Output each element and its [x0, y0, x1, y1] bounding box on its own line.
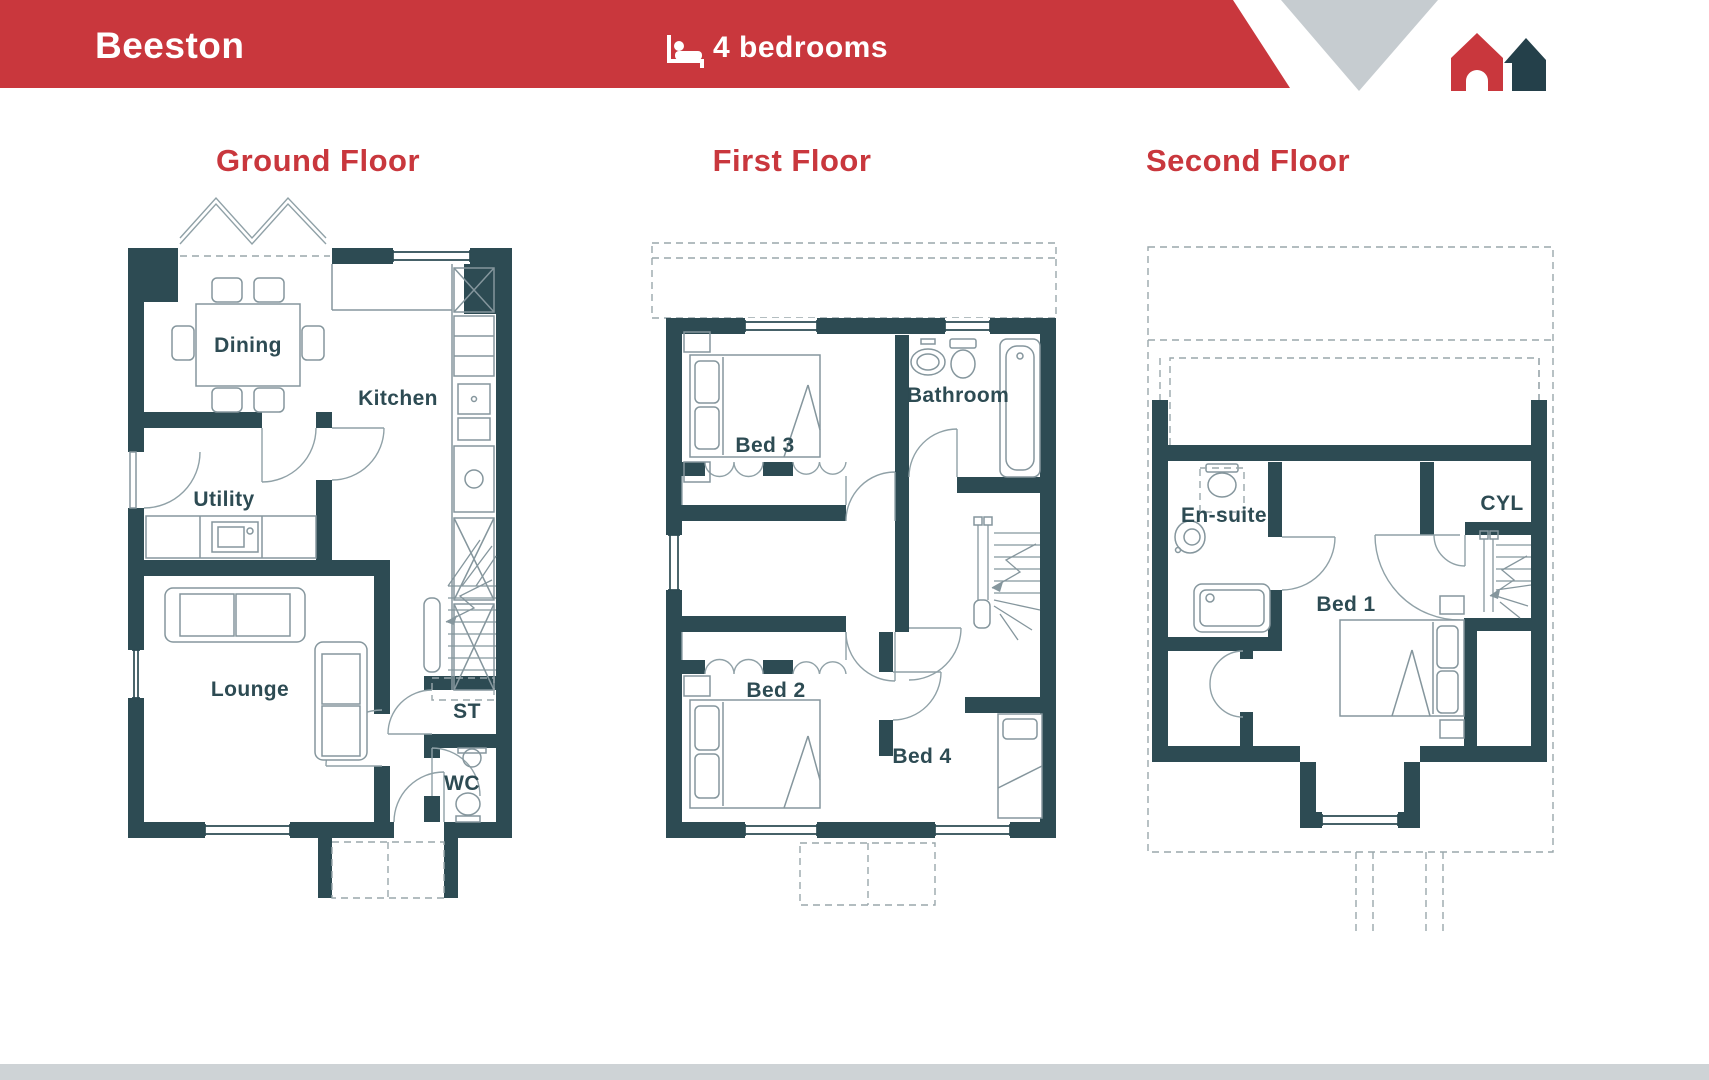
- room-label-dining: Dining: [214, 334, 282, 357]
- room-label-ensuite: En-suite: [1181, 504, 1267, 527]
- bathroom-sink: [911, 349, 945, 375]
- wc-toilet: [456, 793, 480, 815]
- room-label-cyl: CYL: [1480, 492, 1523, 515]
- room-label-bed3: Bed 3: [735, 434, 794, 457]
- bathroom-fixtures: [911, 339, 1040, 477]
- lounge-furniture: [165, 588, 367, 760]
- builder-logo-icon: [1451, 33, 1546, 91]
- wardrobe-bifold-icon: [682, 462, 846, 674]
- plan-ground-floor: Dining Kitchen Utility Lounge ST WC: [128, 198, 512, 898]
- room-label-kitchen: Kitchen: [358, 387, 438, 410]
- room-label-wc: WC: [444, 772, 480, 795]
- porch-outline: [332, 842, 444, 898]
- stairs-second: [1480, 531, 1531, 618]
- shower-tray: [1194, 584, 1270, 632]
- bifold-door-icon: [180, 198, 330, 256]
- sofa: [165, 588, 305, 642]
- header-banner: Beeston 4 bedrooms: [0, 0, 1546, 91]
- title-ground-floor: Ground Floor: [216, 143, 420, 178]
- bedrooms-count-label: 4 bedrooms: [713, 31, 888, 64]
- plan-second-floor: En-suite CYL Bed 1: [1148, 247, 1553, 936]
- single-bed: [998, 714, 1042, 818]
- room-label-bed2: Bed 2: [746, 679, 805, 702]
- ensuite-fixtures: [1175, 464, 1270, 632]
- doors: [682, 429, 961, 720]
- floorplan-page: Beeston 4 bedrooms Ground Floor First Fl…: [0, 0, 1709, 1080]
- windows: [1322, 814, 1398, 826]
- ensuite-toilet: [1208, 473, 1236, 497]
- room-label-st: ST: [453, 700, 481, 723]
- room-label-lounge: Lounge: [211, 678, 289, 701]
- roof-outline-dashed: [652, 243, 1056, 318]
- bathroom-toilet: [951, 350, 975, 378]
- utility-counter: [146, 516, 316, 558]
- page-title: Beeston: [95, 25, 244, 66]
- porch-roof-dashed: [800, 843, 935, 905]
- plan-first-floor: Bed 3 Bathroom Bed 2 Bed 4: [652, 243, 1056, 905]
- footer-gray-bar: [0, 1064, 1709, 1080]
- title-first-floor: First Floor: [713, 143, 872, 178]
- room-label-bathroom: Bathroom: [907, 384, 1009, 407]
- stairs-first: [974, 517, 1040, 640]
- wc-sink: [463, 749, 481, 767]
- room-label-bed4: Bed 4: [892, 745, 951, 768]
- room-label-bed1: Bed 1: [1316, 593, 1375, 616]
- title-second-floor: Second Floor: [1146, 143, 1350, 178]
- bed3-furniture: [684, 332, 820, 482]
- bed1-furniture: [1340, 596, 1464, 738]
- stairs-ground: [424, 540, 496, 672]
- header-gray-chevron: [1281, 0, 1438, 91]
- windows: [132, 198, 470, 836]
- room-label-utility: Utility: [193, 488, 254, 511]
- bed4-furniture: [998, 714, 1042, 818]
- sofa-2: [315, 642, 367, 760]
